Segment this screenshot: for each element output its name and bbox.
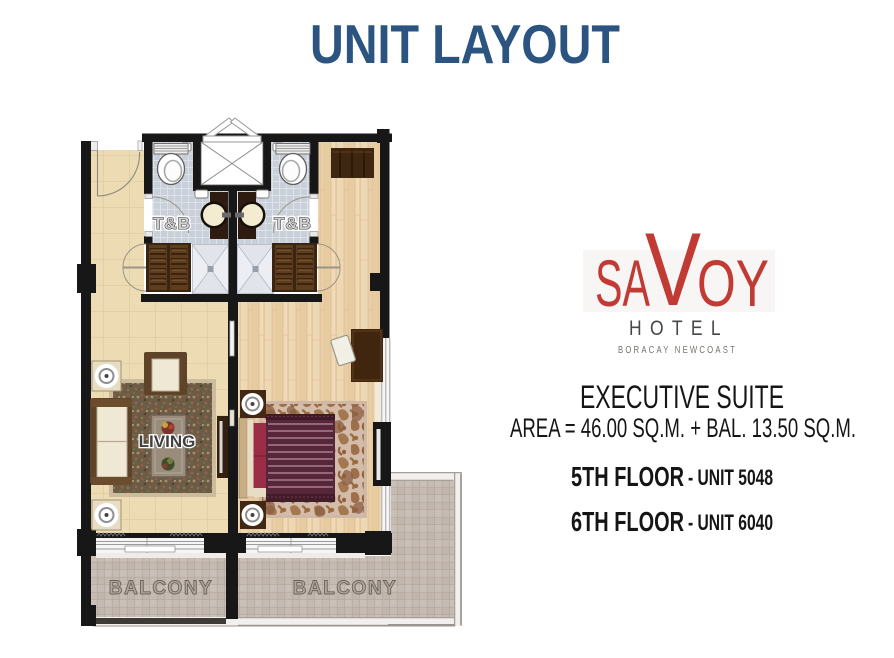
svg-text:LIVING: LIVING xyxy=(139,432,196,451)
svg-text:6TH FLOOR: 6TH FLOOR xyxy=(571,506,684,537)
svg-text:BALCONY: BALCONY xyxy=(293,578,397,599)
svg-text:BORACAY NEWCOAST: BORACAY NEWCOAST xyxy=(618,344,737,356)
svg-text:5TH FLOOR: 5TH FLOOR xyxy=(571,461,684,492)
svg-text:V: V xyxy=(645,212,701,328)
svg-text:BALCONY: BALCONY xyxy=(109,578,213,599)
svg-text:T&B: T&B xyxy=(274,214,312,233)
svg-text:AREA = 46.00 SQ.M. + BAL. 13.5: AREA = 46.00 SQ.M. + BAL. 13.50 SQ.M. xyxy=(510,413,856,443)
svg-text:EXECUTIVE SUITE: EXECUTIVE SUITE xyxy=(580,379,784,415)
svg-text:SA: SA xyxy=(595,246,650,320)
svg-text:HOTEL: HOTEL xyxy=(629,317,729,340)
svg-text:- UNIT 6040: - UNIT 6040 xyxy=(688,510,773,535)
svg-text:OY: OY xyxy=(697,246,769,320)
svg-text:T&B: T&B xyxy=(153,214,191,233)
svg-text:- UNIT 5048: - UNIT 5048 xyxy=(688,465,773,490)
svg-text:UNIT LAYOUT: UNIT LAYOUT xyxy=(310,13,620,75)
